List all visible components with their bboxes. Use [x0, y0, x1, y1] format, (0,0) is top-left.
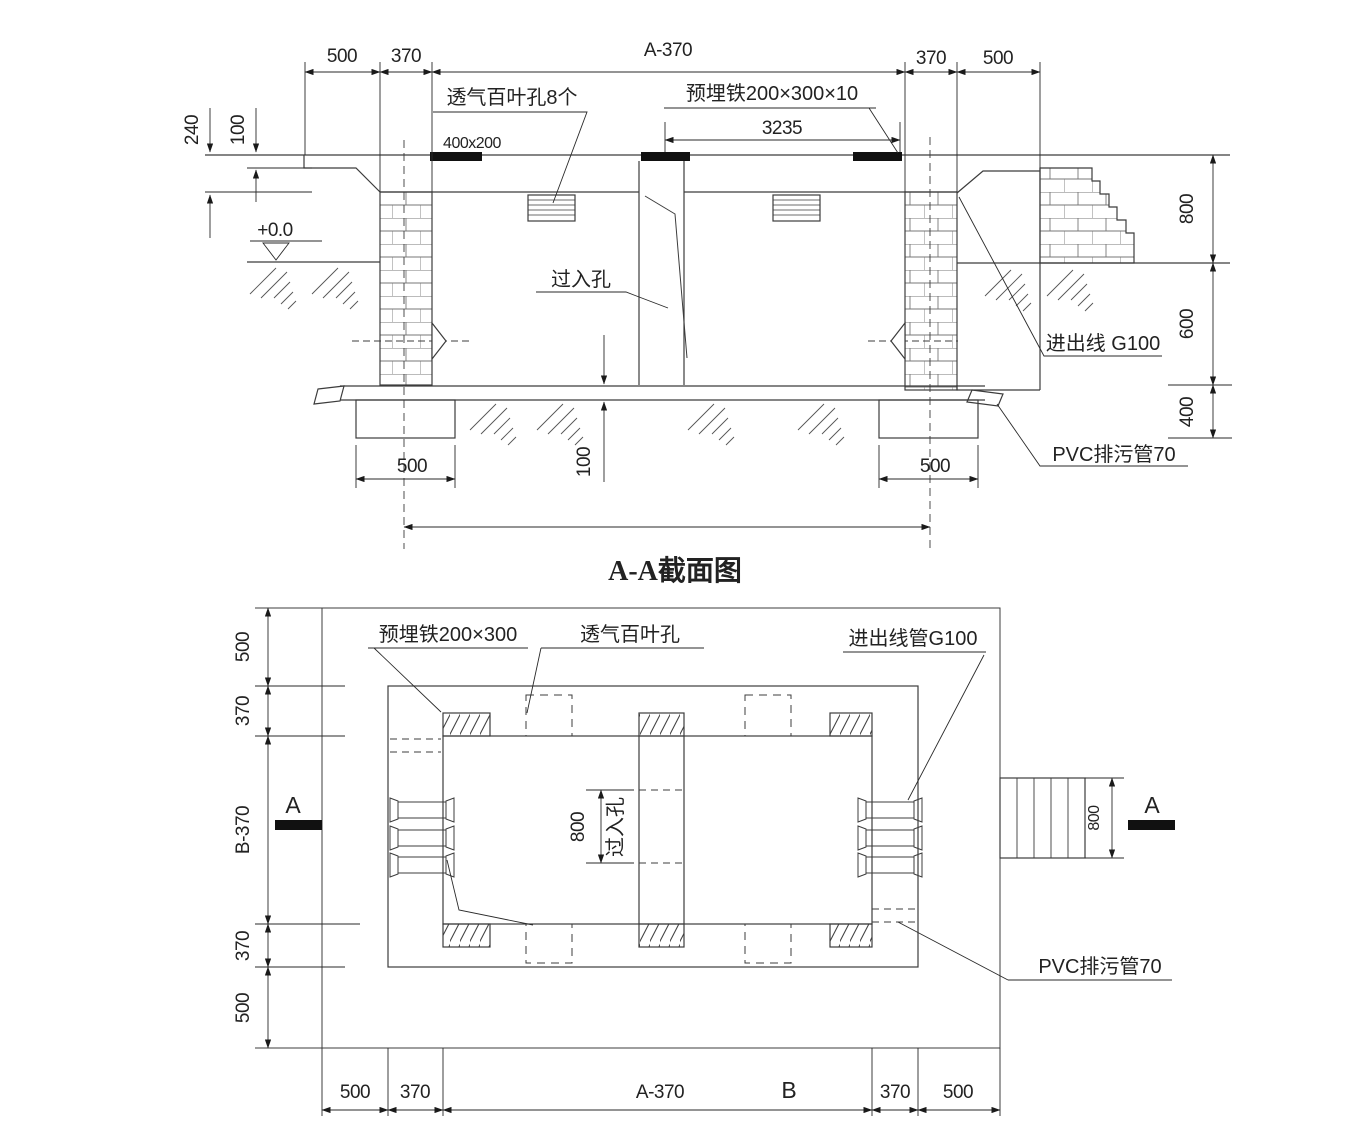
pvc-outlet-spout — [967, 390, 1003, 406]
louver-vent-left — [528, 195, 575, 221]
dim-bottom-370-right: 370 — [880, 1082, 910, 1103]
label-400x200: 400x200 — [443, 135, 501, 152]
right-brick-wall — [905, 192, 957, 390]
excavation-boundary — [322, 608, 1000, 1048]
footing-right — [879, 400, 978, 438]
chute-plan — [1000, 778, 1085, 858]
pvc-pipe-left — [390, 739, 441, 752]
label-inout-line: 进出线 G100 — [1046, 332, 1160, 355]
dim-left-b370: B-370 — [233, 806, 254, 854]
dim-600-right: 600 — [1177, 309, 1198, 339]
label-manhole-section: 过入孔 — [551, 268, 611, 291]
leader-embed-plan-2 — [447, 860, 533, 925]
louver-bottom-left — [526, 924, 572, 963]
plan-view — [255, 608, 1175, 1048]
dim-left-500-top: 500 — [233, 632, 254, 662]
dim-100-floor: 100 — [574, 447, 595, 477]
dim-foot-500-right: 500 — [920, 456, 950, 477]
section-marker-bar-right — [1128, 820, 1175, 830]
footing-left — [356, 400, 455, 438]
dim-left-500-bottom: 500 — [233, 993, 254, 1023]
dim-bottom-500-right: 500 — [943, 1082, 973, 1103]
dim-bottom-a370: A-370 — [636, 1082, 684, 1103]
embed-plate-bottom-right — [830, 924, 872, 947]
section-title: A-A截面图 — [608, 555, 742, 587]
embedded-plate-middle — [641, 152, 690, 161]
louver-vent-right — [773, 195, 820, 221]
leader-manhole — [536, 292, 668, 308]
marker-a-left: A — [285, 792, 301, 818]
dim-3235: 3235 — [762, 118, 802, 139]
dim-top-370-left: 370 — [391, 46, 421, 67]
dim-top-500-right: 500 — [983, 48, 1013, 69]
embed-plate-bottom-left — [443, 924, 490, 947]
embed-plate-top-left — [443, 713, 490, 736]
dim-bottom-500-left: 500 — [340, 1082, 370, 1103]
leader-embed-plan — [368, 648, 528, 712]
label-embed-iron: 预埋铁200×300×10 — [686, 82, 858, 105]
embed-plate-bottom-middle — [639, 924, 684, 947]
louver-top-left — [526, 695, 572, 736]
embedded-plate-left — [430, 152, 482, 161]
drawing-sheet: 500 370 A-370 370 500 3235 透气百叶孔8个 预埋铁20… — [0, 0, 1370, 1121]
plan-texts: 预埋铁200×300 透气百叶孔 进出线管G100 PVC排污管70 500 3… — [233, 623, 1162, 1103]
pvc-pipe-right — [872, 909, 918, 922]
conduit-spools-left — [390, 798, 454, 877]
label-manhole-plan: 过入孔 — [604, 797, 627, 857]
dim-left-370-bottom: 370 — [233, 931, 254, 961]
dim-foot-500-left: 500 — [397, 456, 427, 477]
level-symbol — [263, 243, 289, 260]
dim-800-manhole: 800 — [568, 812, 589, 842]
embed-plate-top-right — [830, 713, 872, 736]
marker-a-right: A — [1144, 792, 1160, 818]
label-conduit-plan: 进出线管G100 — [849, 627, 978, 650]
dim-bottom-b: B — [781, 1077, 796, 1103]
conduit-spools-right — [858, 798, 922, 877]
cable-pit — [957, 168, 1040, 390]
section-marker-bar-left — [275, 820, 322, 830]
dim-240: 240 — [182, 115, 203, 145]
label-pvc-plan: PVC排污管70 — [1038, 955, 1161, 978]
louver-bottom-right — [745, 924, 791, 963]
dim-top-a370: A-370 — [644, 40, 692, 61]
dim-bottom-370-left: 370 — [400, 1082, 430, 1103]
technical-drawing: 500 370 A-370 370 500 3235 透气百叶孔8个 预埋铁20… — [0, 0, 1370, 1121]
dim-top-500-left: 500 — [327, 46, 357, 67]
plan-dimensions — [255, 608, 1172, 1116]
left-brick-wall — [380, 192, 432, 385]
dim-800-right: 800 — [1177, 194, 1198, 224]
label-pvc-section: PVC排污管70 — [1052, 443, 1175, 466]
wall-outline-inner — [443, 736, 872, 924]
dim-top-370-right: 370 — [916, 48, 946, 69]
label-louver-count: 透气百叶孔8个 — [446, 86, 577, 109]
stepped-brick-wall — [1040, 168, 1134, 263]
dim-100-slab: 100 — [228, 115, 249, 145]
label-louver-plan: 透气百叶孔 — [580, 623, 680, 646]
louver-top-right — [745, 695, 791, 736]
embed-plate-top-middle — [639, 713, 684, 736]
dim-800-chute: 800 — [1086, 805, 1103, 831]
dim-left-370-top: 370 — [233, 696, 254, 726]
label-embed-plan: 预埋铁200×300 — [379, 623, 517, 646]
section-texts: 500 370 A-370 370 500 3235 透气百叶孔8个 预埋铁20… — [182, 40, 1198, 587]
label-level: +0.0 — [257, 220, 293, 241]
embedded-plate-right — [853, 152, 902, 161]
leader-louver-plan — [527, 648, 704, 713]
dim-400-right: 400 — [1177, 397, 1198, 427]
floor-left-lip — [314, 386, 344, 404]
